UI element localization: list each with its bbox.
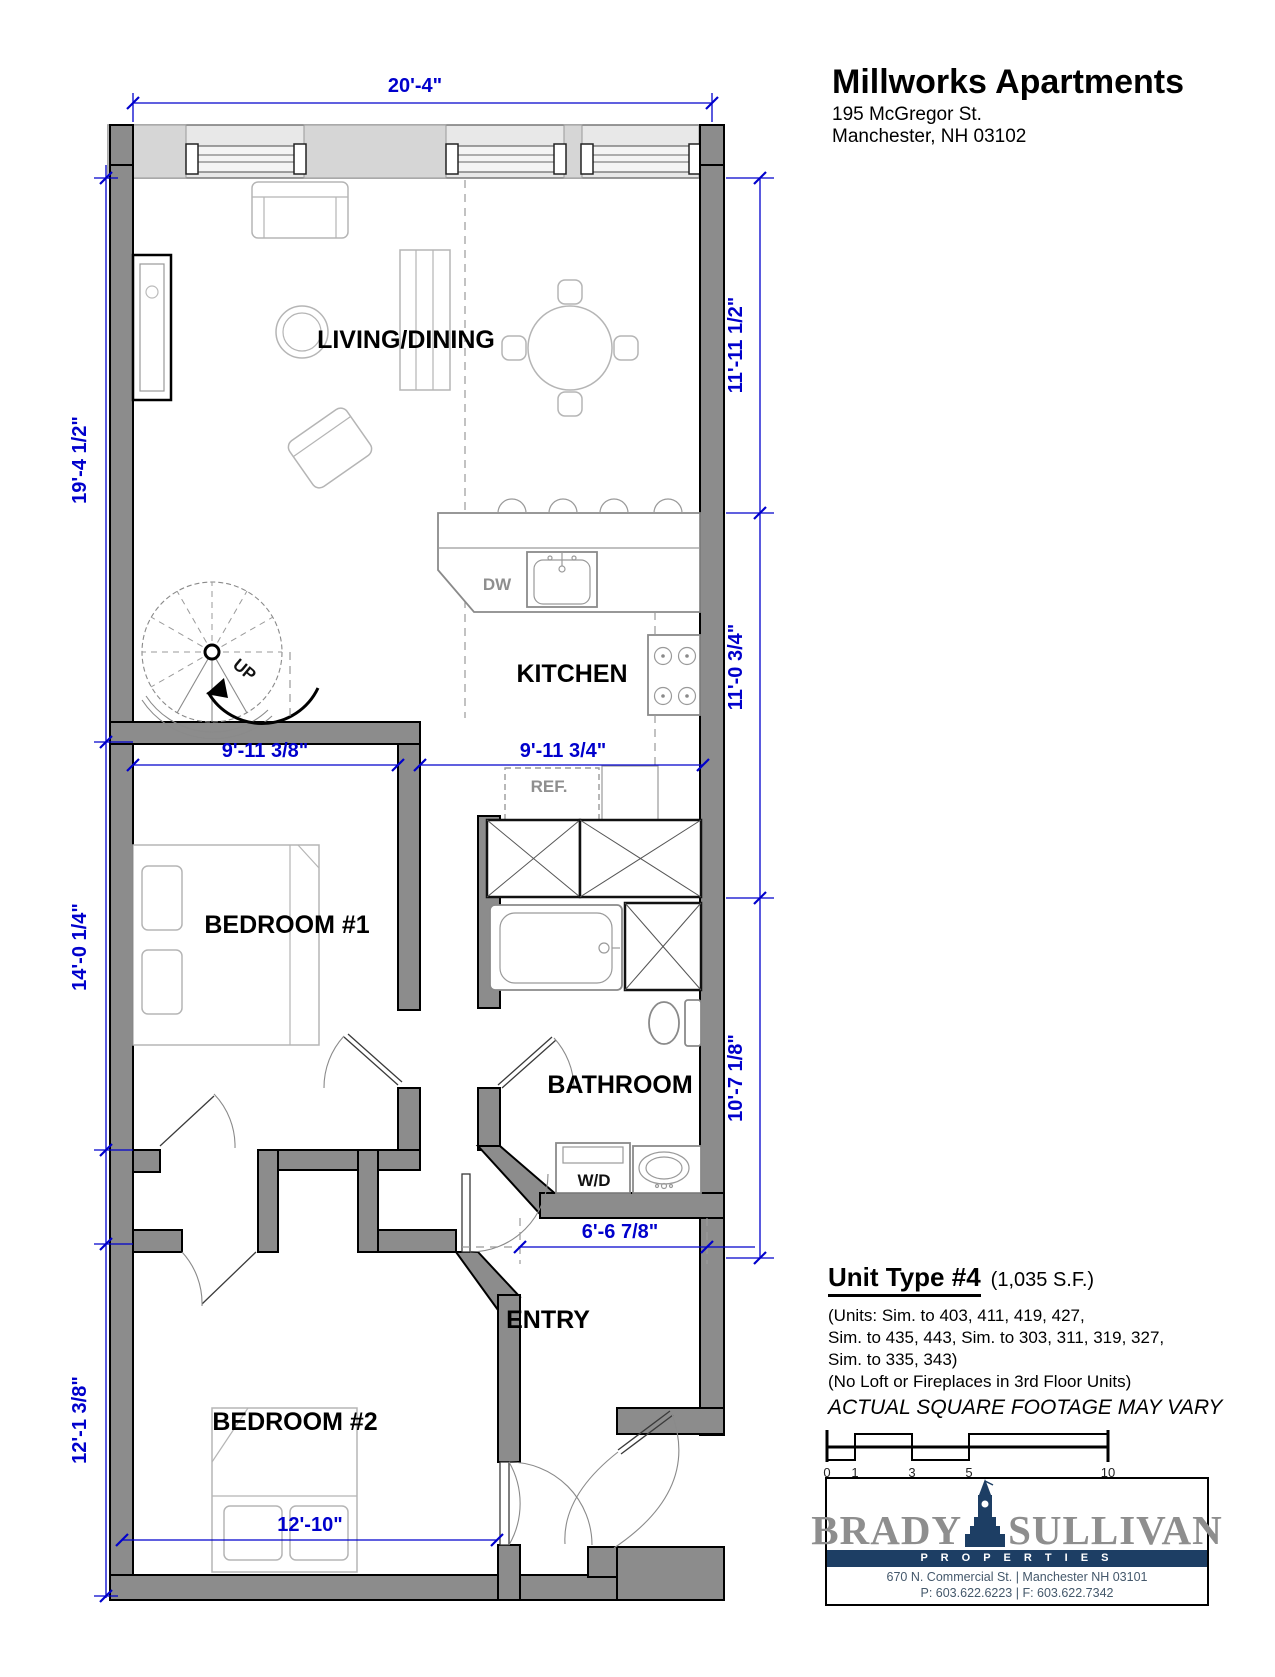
room-label-bedroom2: BEDROOM #2 <box>212 1408 377 1436</box>
wall-pier <box>304 125 446 178</box>
dimension-left-middle: 14'-0 1/4" <box>69 903 91 991</box>
room-label-bedroom1: BEDROOM #1 <box>204 911 369 939</box>
floor-plan-sheet: UP DW REF. <box>0 0 1275 1672</box>
closet <box>487 820 580 897</box>
pantry-cabinet <box>602 766 658 820</box>
plan-svg: UP DW REF. <box>0 0 1275 1672</box>
stair-center-post <box>205 645 219 659</box>
unit-disclaimer: ACTUAL SQUARE FOOTAGE MAY VARY <box>828 1396 1228 1420</box>
vestibule-door <box>160 1094 235 1148</box>
wall-closet-right <box>358 1150 378 1252</box>
stove <box>648 635 700 715</box>
room-label-bathroom: BATHROOM <box>547 1071 692 1099</box>
wall-bathroom-left <box>478 1088 500 1150</box>
unit-list-line2: Sim. to 435, 443, Sim. to 303, 311, 319,… <box>828 1327 1228 1349</box>
unit-note: (No Loft or Fireplaces in 3rd Floor Unit… <box>828 1371 1228 1393</box>
up-label: UP <box>229 655 259 685</box>
bedroom2-hall-door <box>182 1252 256 1306</box>
unit-sqft: (1,035 S.F.) <box>991 1269 1094 1292</box>
unit-list-line3: Sim. to 335, 343) <box>828 1349 1228 1371</box>
bar-stool <box>654 499 682 513</box>
washer-dryer: W/D <box>556 1143 630 1193</box>
closet <box>580 820 701 897</box>
bar-stool <box>549 499 577 513</box>
pillow <box>142 866 182 930</box>
wall-bedroom1-right <box>398 1088 420 1150</box>
pillow <box>224 1506 282 1560</box>
bedroom1-bed <box>133 845 319 1045</box>
dimension-bedroom1-width: 9'-11 3/8" <box>222 740 309 762</box>
window-unit <box>186 144 306 174</box>
window-unit <box>446 144 566 174</box>
room-label-entry: ENTRY <box>506 1306 590 1334</box>
toilet <box>649 1000 701 1046</box>
wall-bottom <box>110 1575 617 1600</box>
dimension-right-upper: 11'-11 1/2" <box>725 297 747 394</box>
unit-type-label: Unit Type #4 <box>828 1262 981 1297</box>
room-label-kitchen: KITCHEN <box>516 660 627 688</box>
dining-table <box>502 280 638 416</box>
dimension-top-width: 20'-4" <box>388 75 442 97</box>
tv-console <box>400 250 450 390</box>
unit-list-line1: (Units: Sim. to 403, 411, 419, 427, <box>828 1305 1228 1327</box>
wall-bedroom2-top <box>133 1230 182 1252</box>
dining-chair <box>558 392 582 416</box>
refrigerator-label: REF. <box>531 777 568 796</box>
bar-stool <box>498 499 526 513</box>
bedroom1-door <box>324 1034 402 1088</box>
clock-tower-icon <box>963 1479 1007 1552</box>
kitchen-sink <box>527 552 597 607</box>
armchair <box>285 405 374 491</box>
shower <box>625 903 701 990</box>
dimension-left-lower: 12'-1 3/8" <box>69 1376 91 1464</box>
dining-chair <box>614 336 638 360</box>
vanity-sink <box>633 1146 701 1193</box>
dining-chair <box>558 280 582 304</box>
property-address-line2: Manchester, NH 03102 <box>832 126 1252 148</box>
sofa <box>252 182 348 238</box>
logo-address: 670 N. Commercial St. | Manchester NH 03… <box>827 1569 1207 1585</box>
wall-right <box>700 165 724 1435</box>
title-block: Millworks Apartments 195 McGregor St. Ma… <box>832 64 1252 148</box>
dining-chair <box>502 336 526 360</box>
wall-entry <box>617 1408 724 1434</box>
wall-vestibule <box>133 1150 160 1172</box>
room-label-living-dining: LIVING/DINING <box>317 326 495 354</box>
bathtub <box>490 905 622 990</box>
bar-stool <box>600 499 628 513</box>
unit-info: Unit Type #4 (1,035 S.F.) (Units: Sim. t… <box>828 1262 1228 1420</box>
wall-bedroom2-top <box>378 1230 456 1252</box>
property-name: Millworks Apartments <box>832 64 1252 100</box>
dimension-entry-width: 6'-6 7/8" <box>582 1221 659 1243</box>
logo-phone: P: 603.622.6223 | F: 603.622.7342 <box>827 1585 1207 1601</box>
dimension-bedroom2-width: 12'-10" <box>277 1514 342 1536</box>
washer-dryer-label: W/D <box>577 1171 610 1190</box>
scale-bar: 0 1 3 5 10 <box>823 1430 1115 1480</box>
wall-left <box>110 165 133 1600</box>
dimension-right-middle: 11'-0 3/4" <box>725 624 747 711</box>
wall-bedroom2-right <box>498 1545 520 1600</box>
wall-closet-left <box>258 1150 278 1252</box>
wall-bedroom1-right <box>398 744 420 1010</box>
bar-stools <box>498 499 682 513</box>
spiral-staircase: UP <box>142 582 318 739</box>
living-room-furniture <box>133 180 638 718</box>
property-address-line1: 195 McGregor St. <box>832 104 1252 126</box>
wall-entry-stub <box>588 1547 617 1577</box>
dimension-right-lower: 10'-7 1/8" <box>725 1034 747 1122</box>
wall-closet-top <box>258 1150 420 1170</box>
wall-bathroom-bottom <box>540 1193 724 1218</box>
brady-sullivan-logo: BRADY SULLIVAN P R O P E R T I E S 670 N… <box>825 1477 1209 1606</box>
dishwasher-label: DW <box>483 575 512 594</box>
window-unit <box>581 144 701 174</box>
bedroom2-door <box>500 1462 592 1545</box>
logo-brady-text: BRADY <box>811 1510 962 1550</box>
logo-sullivan-text: SULLIVAN <box>1008 1510 1223 1550</box>
pillow <box>142 950 182 1014</box>
wall-entry-corner <box>617 1547 724 1600</box>
fireplace <box>133 255 171 400</box>
dimension-left-upper: 19'-4 1/2" <box>69 416 91 504</box>
dimension-kitchen-width: 9'-11 3/4" <box>520 740 607 762</box>
window-band <box>108 125 720 178</box>
bathroom-fixtures: W/D <box>487 820 701 1193</box>
